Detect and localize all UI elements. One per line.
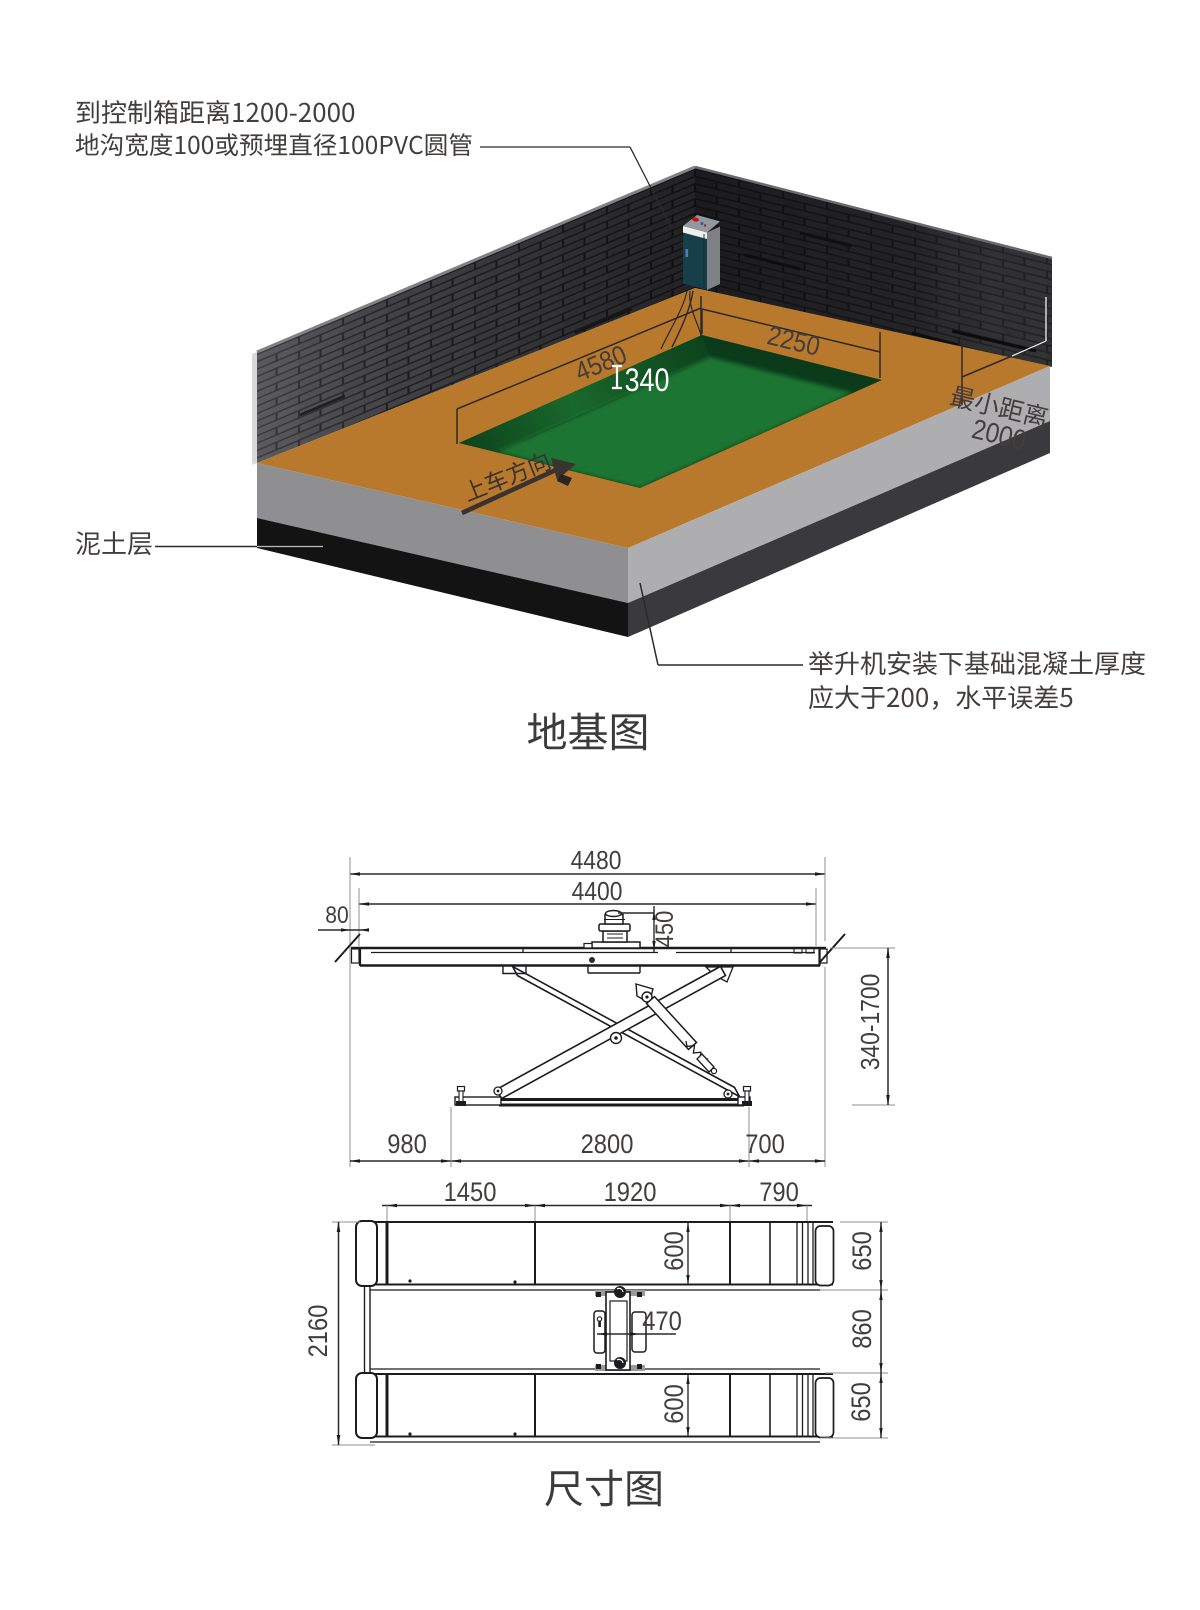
svg-text:650: 650	[848, 1231, 878, 1271]
svg-text:340-1700: 340-1700	[857, 974, 886, 1071]
svg-text:4480: 4480	[571, 847, 622, 876]
svg-text:860: 860	[848, 1309, 878, 1349]
svg-text:2800: 2800	[581, 1130, 634, 1160]
svg-text:980: 980	[387, 1130, 427, 1160]
svg-text:470: 470	[642, 1307, 682, 1337]
svg-text:700: 700	[745, 1130, 785, 1160]
svg-text:1450: 1450	[444, 1178, 497, 1208]
svg-text:600: 600	[660, 1384, 690, 1424]
svg-text:600: 600	[660, 1231, 690, 1271]
svg-text:650: 650	[847, 1382, 877, 1422]
svg-text:450: 450	[651, 911, 679, 948]
svg-text:2160: 2160	[304, 1305, 334, 1358]
svg-text:340: 340	[625, 363, 670, 399]
svg-text:4400: 4400	[572, 878, 623, 907]
svg-text:790: 790	[759, 1178, 799, 1208]
svg-text:80: 80	[325, 902, 348, 929]
svg-text:1920: 1920	[604, 1178, 657, 1208]
